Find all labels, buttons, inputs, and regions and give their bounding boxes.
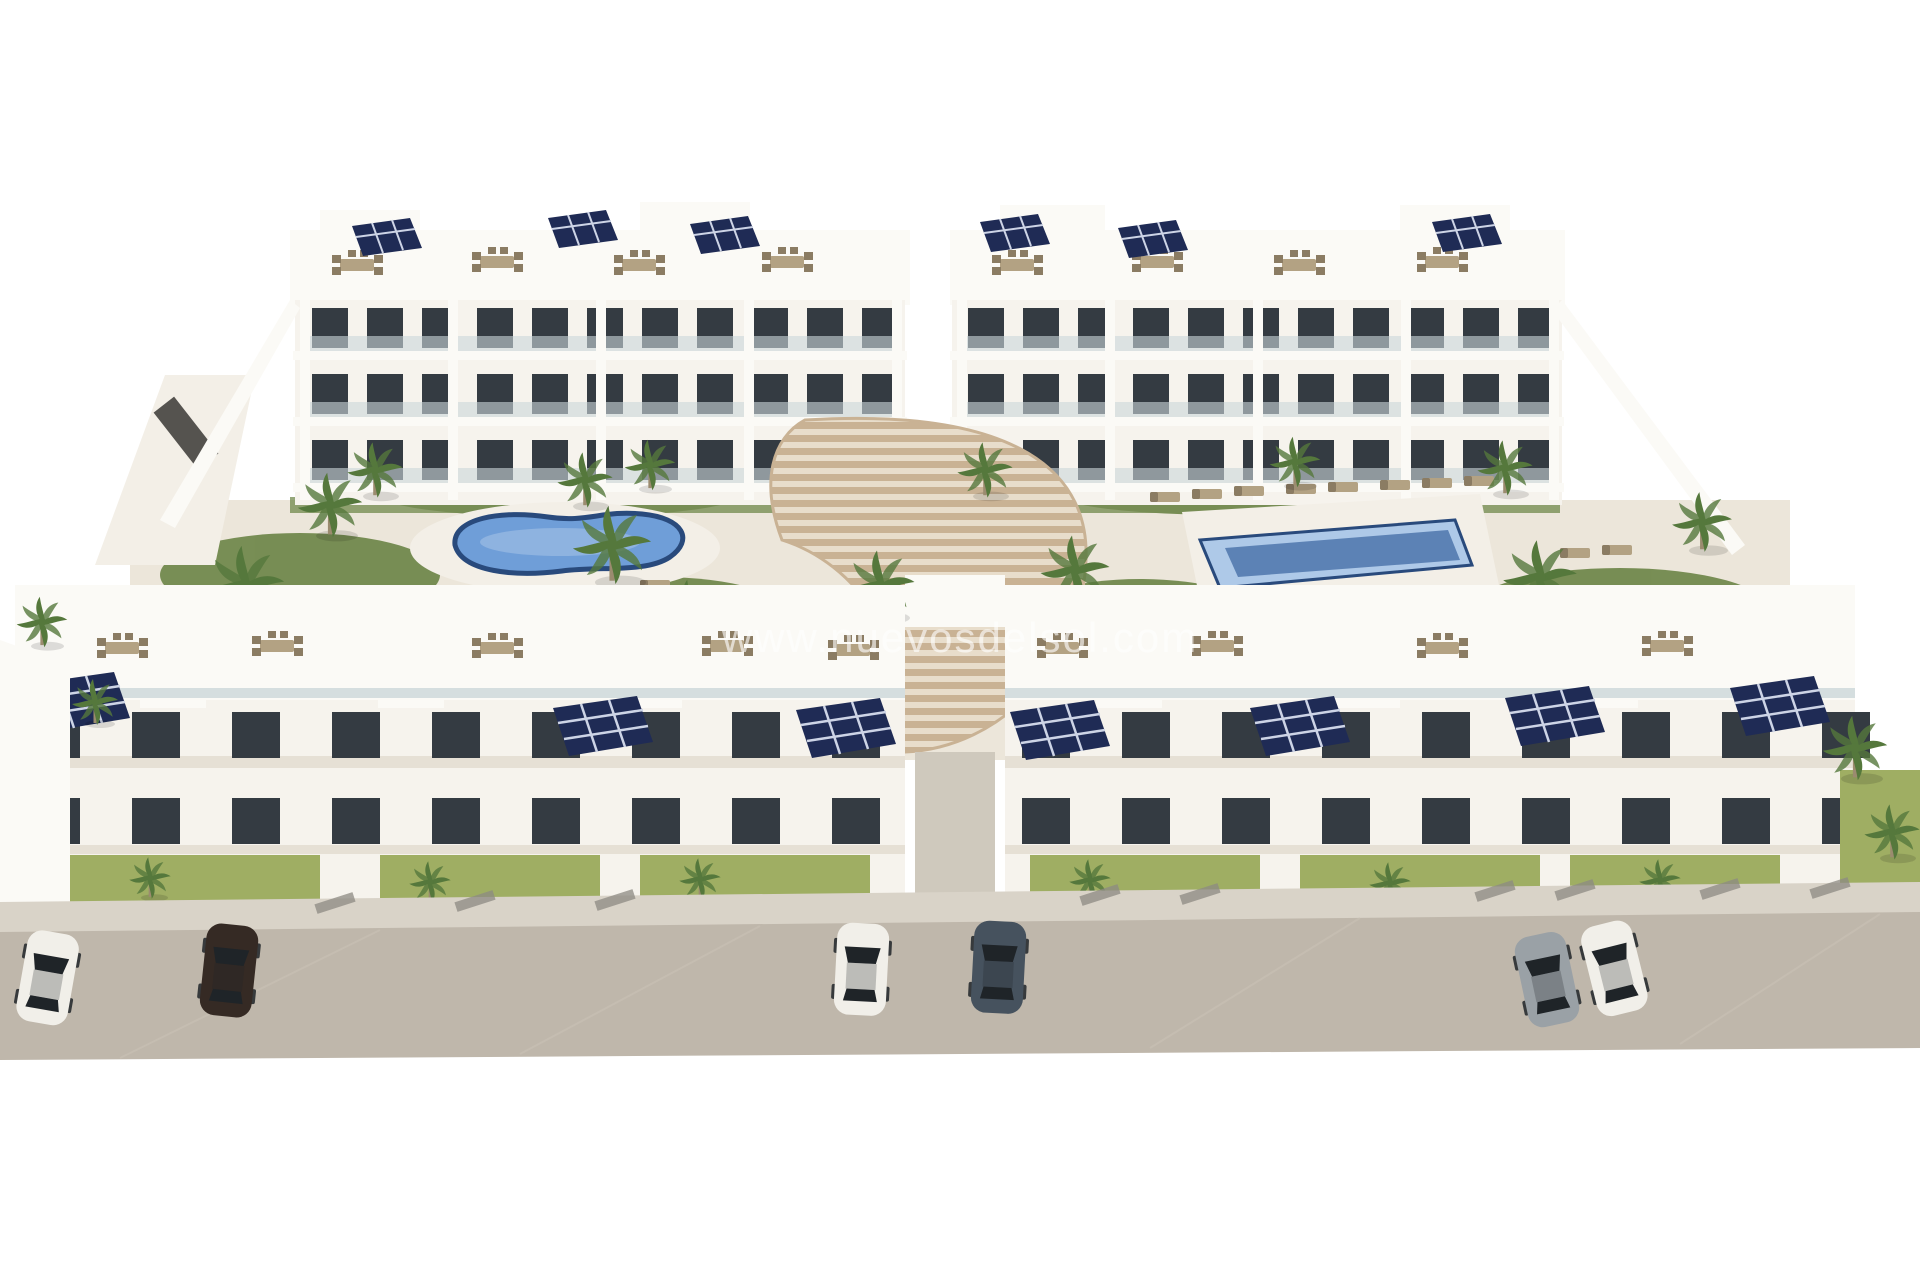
window-row: [32, 712, 880, 758]
parked-car-white-suv: [830, 922, 893, 1017]
terrace-glass-railing: [1005, 688, 1855, 698]
watermark-text: www.nuevosdelsol.com: [721, 614, 1199, 661]
scene-canvas: www.nuevosdelsol.com: [0, 0, 1920, 1280]
street: [0, 877, 1920, 1060]
left-boundary-wall: [0, 640, 70, 905]
back-building-right: [950, 205, 1565, 505]
window-row: [32, 798, 880, 844]
kidney-pool: [410, 502, 720, 594]
window-row: [1022, 798, 1870, 844]
architectural-render: www.nuevosdelsol.com: [0, 0, 1920, 1280]
terrace-glass-railing: [15, 688, 905, 698]
parked-car-slate: [967, 920, 1030, 1015]
